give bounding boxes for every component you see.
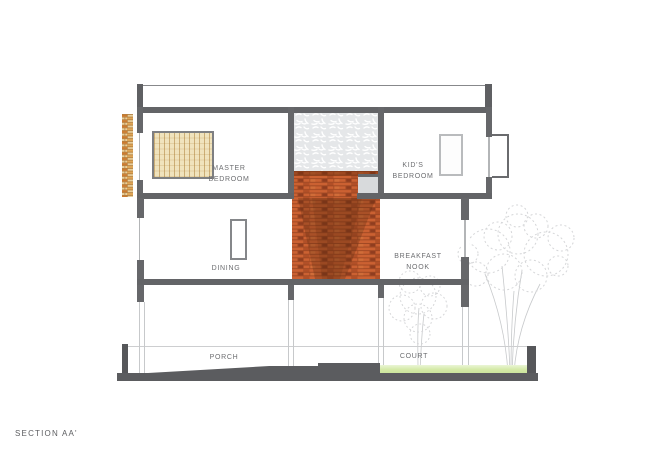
column-stub-2 xyxy=(288,285,294,300)
porch-step xyxy=(318,363,380,368)
column-stub-4 xyxy=(461,285,469,307)
column-stub-1 xyxy=(137,285,144,302)
timber-brick-screen xyxy=(122,114,133,197)
label-breakfast-nook: BREAKFAST NOOK xyxy=(394,251,442,273)
parapet-line xyxy=(140,85,488,86)
dining-window xyxy=(230,219,247,260)
court-lawn xyxy=(380,365,527,373)
label-porch: PORCH xyxy=(210,352,239,363)
upper-right-glass-line xyxy=(488,137,490,177)
porch-column-2 xyxy=(288,300,294,373)
middle-left-glass-line xyxy=(139,218,141,260)
first-floor-slab-right xyxy=(357,193,492,199)
middle-right-glass-line xyxy=(464,220,466,257)
brick-niche xyxy=(358,174,378,193)
roof-slab xyxy=(137,107,492,113)
master-bedroom-timber-window xyxy=(152,131,214,179)
stair-bay-left-wall xyxy=(288,107,294,198)
drawing-title: SECTION AA' xyxy=(15,429,78,438)
parapet-post-left xyxy=(137,84,143,109)
jali-screen xyxy=(294,112,378,171)
ground-line xyxy=(117,373,538,382)
section-drawing-canvas: MASTER BEDROOM KID'S BEDROOM DINING BREA… xyxy=(0,0,650,459)
parapet-post-right xyxy=(485,84,492,109)
porch-column-4 xyxy=(462,307,469,373)
label-dining: DINING xyxy=(212,263,241,274)
label-master-bedroom: MASTER BEDROOM xyxy=(208,163,249,185)
trees-sketch xyxy=(368,196,593,376)
bay-window-box xyxy=(492,134,509,178)
stair-bay-right-wall xyxy=(378,107,384,198)
porch-column-1 xyxy=(139,302,145,373)
column-stub-3 xyxy=(378,285,384,298)
upper-left-glass-line xyxy=(139,133,141,180)
first-floor-slab-left xyxy=(137,193,294,199)
label-court: COURT xyxy=(400,351,428,362)
porch-ceiling-slab xyxy=(137,279,469,285)
label-kids-bedroom: KID'S BEDROOM xyxy=(392,160,433,182)
kids-bedroom-window xyxy=(439,134,463,176)
